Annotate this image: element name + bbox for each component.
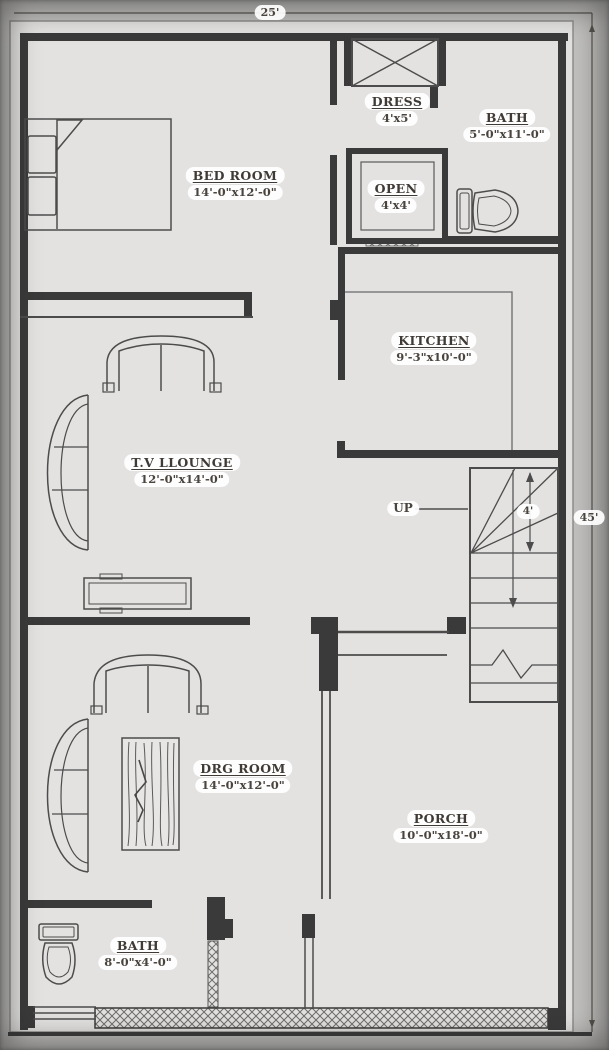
floor-plan-canvas: 25' 45' 4' UP BED ROOM 14'-0"x12'-0" DRE…	[0, 0, 609, 1050]
room-name: OPEN	[368, 180, 425, 197]
wooden-table	[122, 738, 179, 850]
room-size: 8'-0"x4'-0"	[98, 955, 177, 970]
room-label-dress: DRESS 4'x5'	[365, 93, 430, 126]
room-size: 4'x4'	[375, 198, 417, 213]
room-size: 14'-0"x12'-0"	[195, 778, 290, 793]
floor-plan-drawing	[0, 0, 609, 1050]
room-name: PORCH	[407, 810, 475, 827]
room-label-tv-lounge: T.V LLOUNGE 12'-0"x14'-0"	[124, 454, 240, 487]
room-label-bath-top: BATH 5'-0"x11'-0"	[463, 109, 550, 142]
room-size: 14'-0"x12'-0"	[187, 185, 282, 200]
plot-depth-dimension: 45'	[574, 510, 605, 525]
room-size: 4'x5'	[376, 111, 418, 126]
room-size: 12'-0"x14'-0"	[134, 472, 229, 487]
room-size: 9'-3"x10'-0"	[390, 350, 477, 365]
room-label-open: OPEN 4'x4'	[368, 180, 425, 213]
room-name: BATH	[479, 109, 535, 126]
room-size: 5'-0"x11'-0"	[463, 127, 550, 142]
room-name: BATH	[110, 937, 166, 954]
room-label-kitchen: KITCHEN 9'-3"x10'-0"	[390, 332, 477, 365]
stairs-up-label: UP	[387, 501, 419, 516]
room-label-porch: PORCH 10'-0"x18'-0"	[393, 810, 488, 843]
plot-width-dimension: 25'	[255, 5, 286, 20]
room-label-drg-room: DRG ROOM 14'-0"x12'-0"	[193, 760, 292, 793]
room-name: BED ROOM	[186, 167, 285, 184]
room-name: KITCHEN	[391, 332, 477, 349]
room-name: T.V LLOUNGE	[124, 454, 240, 471]
room-size: 10'-0"x18'-0"	[393, 828, 488, 843]
stair-width-dimension: 4'	[517, 504, 540, 519]
floor-area	[10, 21, 573, 1032]
room-name: DRESS	[365, 93, 430, 110]
room-label-bath-bottom: BATH 8'-0"x4'-0"	[98, 937, 177, 970]
room-label-bed-room: BED ROOM 14'-0"x12'-0"	[186, 167, 285, 200]
room-name: DRG ROOM	[193, 760, 292, 777]
